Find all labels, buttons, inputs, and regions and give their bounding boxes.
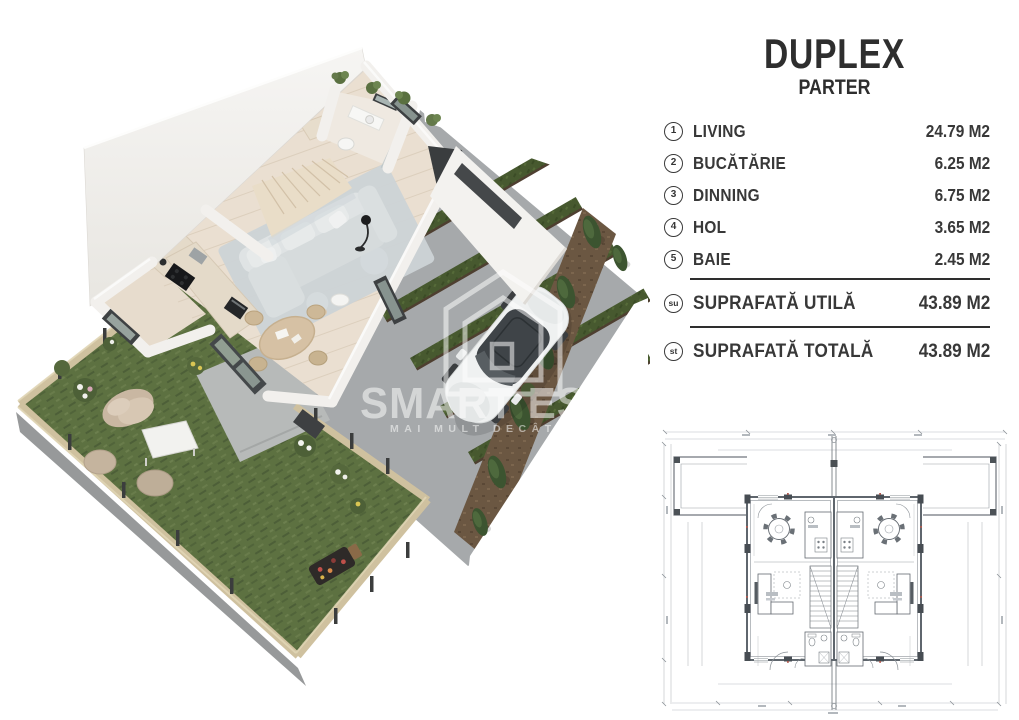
technical-blueprint xyxy=(658,426,1012,716)
blueprint-unit xyxy=(745,493,835,670)
divider xyxy=(690,326,990,328)
total-area: 43.89 M2 xyxy=(918,292,990,315)
room-label: LIVING xyxy=(693,121,746,142)
total-overall-row: st SUPRAFATĂ TOTALĂ 43.89 M2 xyxy=(650,331,1019,371)
listing-flyer: { "panel": { "title": "DUPLEX", "subtitl… xyxy=(0,0,1019,720)
room-row: 1 LIVING 24.79 M2 xyxy=(650,115,1019,147)
total-useful-row: su SUPRAFATĂ UTILĂ 43.89 M2 xyxy=(650,283,1019,323)
room-number-badge: 4 xyxy=(664,218,683,237)
room-label: DINNING xyxy=(693,185,760,206)
stairs-plan xyxy=(810,566,831,628)
total-label: SUPRAFATĂ UTILĂ xyxy=(693,292,856,315)
room-list: 1 LIVING 24.79 M2 2 BUCĂTĂRIE 6.25 M2 3 … xyxy=(650,115,1019,275)
room-label: BUCĂTĂRIE xyxy=(693,153,786,174)
page-title: DUPLEX xyxy=(687,33,982,75)
room-area: 6.25 M2 xyxy=(934,153,990,174)
room-number-badge: 1 xyxy=(664,122,683,141)
room-number-badge: 5 xyxy=(664,250,683,269)
floorplan-3d-render: SMART ES MAI MULT DECÂT xyxy=(0,0,650,720)
room-number-badge: 2 xyxy=(664,154,683,173)
toilet xyxy=(338,138,354,150)
room-area: 6.75 M2 xyxy=(934,185,990,206)
room-label: BAIE xyxy=(693,249,731,270)
side-table xyxy=(331,294,349,306)
room-area: 2.45 M2 xyxy=(934,249,990,270)
room-area: 24.79 M2 xyxy=(926,121,990,142)
st-badge: st xyxy=(664,342,683,361)
page-subtitle: PARTER xyxy=(678,76,992,99)
su-badge: su xyxy=(664,294,683,313)
room-row: 3 DINNING 6.75 M2 xyxy=(650,179,1019,211)
total-label: SUPRAFATĂ TOTALĂ xyxy=(693,340,874,363)
watermark-tagline: MAI MULT DECÂT xyxy=(390,422,557,435)
pouf xyxy=(137,470,173,496)
room-number-badge: 3 xyxy=(664,186,683,205)
room-row: 5 BAIE 2.45 M2 xyxy=(650,243,1019,275)
pouf xyxy=(84,450,116,474)
watermark-brand: SMART ES xyxy=(360,379,586,428)
total-area: 43.89 M2 xyxy=(918,340,990,363)
room-row: 4 HOL 3.65 M2 xyxy=(650,211,1019,243)
room-row: 2 BUCĂTĂRIE 6.25 M2 xyxy=(650,147,1019,179)
divider xyxy=(690,278,990,280)
room-area: 3.65 M2 xyxy=(934,217,990,238)
room-label: HOL xyxy=(693,217,726,238)
